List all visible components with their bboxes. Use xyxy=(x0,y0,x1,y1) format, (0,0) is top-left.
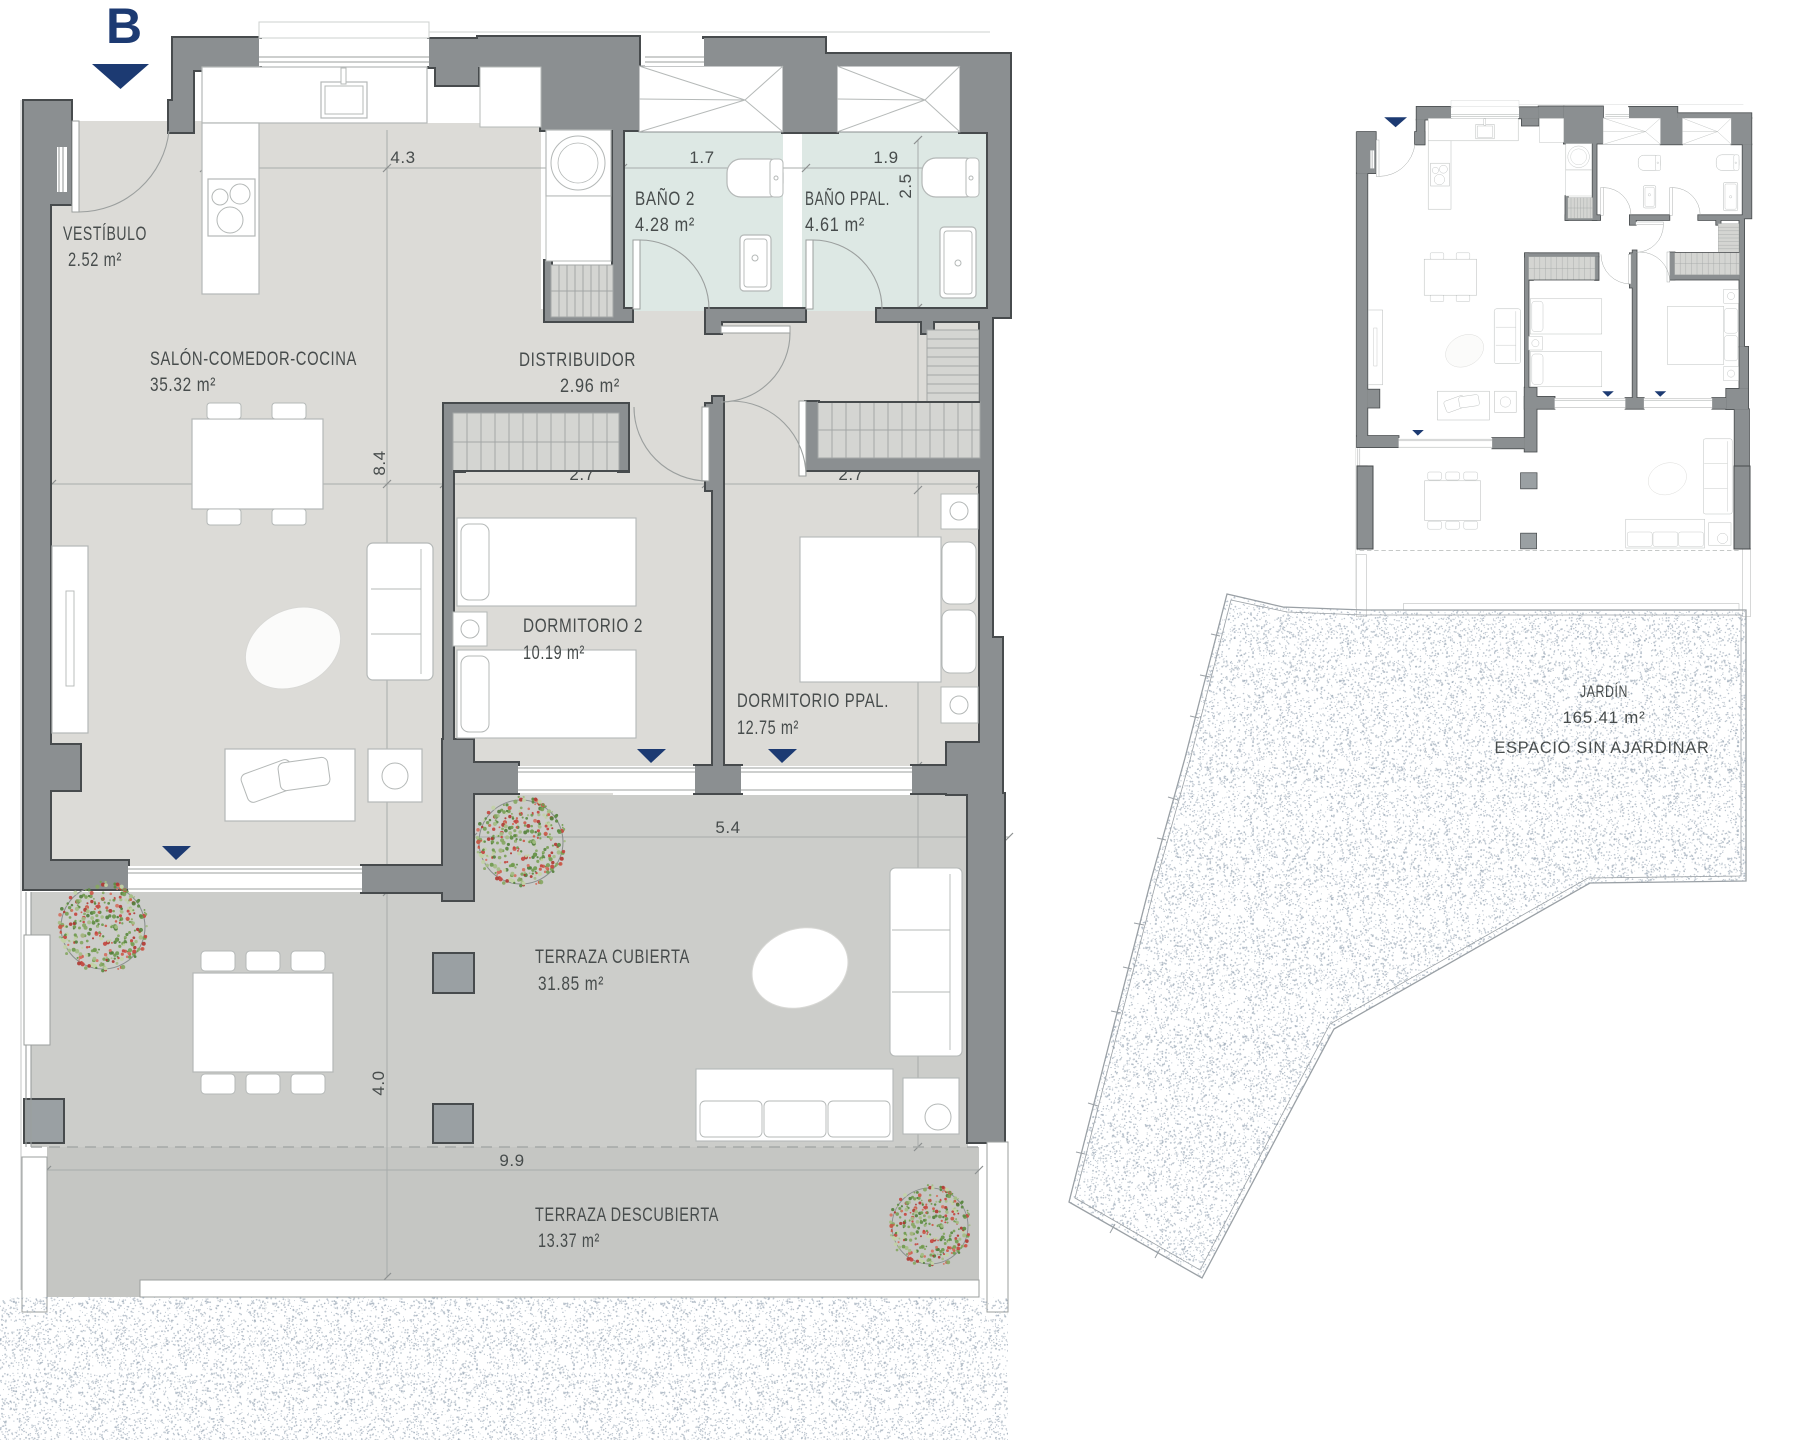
svg-text:BAÑO 2: BAÑO 2 xyxy=(635,188,695,210)
svg-text:1.9: 1.9 xyxy=(873,148,898,167)
svg-text:BAÑO PPAL.: BAÑO PPAL. xyxy=(805,188,890,210)
svg-text:2.5: 2.5 xyxy=(896,173,915,198)
svg-text:13.37 m²: 13.37 m² xyxy=(538,1231,600,1252)
svg-text:SALÓN-COMEDOR-COCINA: SALÓN-COMEDOR-COCINA xyxy=(150,348,357,370)
svg-text:5.4: 5.4 xyxy=(715,818,740,837)
svg-text:VESTÍBULO: VESTÍBULO xyxy=(63,224,147,245)
svg-text:9.9: 9.9 xyxy=(499,1151,524,1170)
svg-text:35.32 m²: 35.32 m² xyxy=(150,375,216,396)
svg-text:JARDÍN: JARDÍN xyxy=(1580,682,1628,701)
svg-text:4.28 m²: 4.28 m² xyxy=(635,215,695,236)
svg-text:31.85 m²: 31.85 m² xyxy=(538,974,604,995)
svg-text:ESPACIO SIN AJARDINAR: ESPACIO SIN AJARDINAR xyxy=(1495,738,1710,757)
svg-text:165.41 m²: 165.41 m² xyxy=(1563,708,1646,727)
svg-text:4.61 m²: 4.61 m² xyxy=(805,215,865,236)
svg-text:12.75 m²: 12.75 m² xyxy=(737,718,799,739)
svg-text:10.19 m²: 10.19 m² xyxy=(523,643,585,664)
svg-text:4.3: 4.3 xyxy=(390,148,415,167)
svg-text:8.4: 8.4 xyxy=(370,450,389,475)
svg-text:TERRAZA DESCUBIERTA: TERRAZA DESCUBIERTA xyxy=(535,1205,719,1226)
svg-text:1.7: 1.7 xyxy=(689,148,714,167)
svg-text:DORMITORIO 2: DORMITORIO 2 xyxy=(523,616,643,637)
svg-text:2.96 m²: 2.96 m² xyxy=(560,376,620,397)
svg-text:DISTRIBUIDOR: DISTRIBUIDOR xyxy=(519,350,636,371)
svg-text:DORMITORIO PPAL.: DORMITORIO PPAL. xyxy=(737,691,889,712)
svg-text:2.52 m²: 2.52 m² xyxy=(68,250,122,271)
svg-text:TERRAZA CUBIERTA: TERRAZA CUBIERTA xyxy=(535,947,690,968)
svg-text:B: B xyxy=(106,0,142,54)
svg-text:4.0: 4.0 xyxy=(369,1070,388,1095)
